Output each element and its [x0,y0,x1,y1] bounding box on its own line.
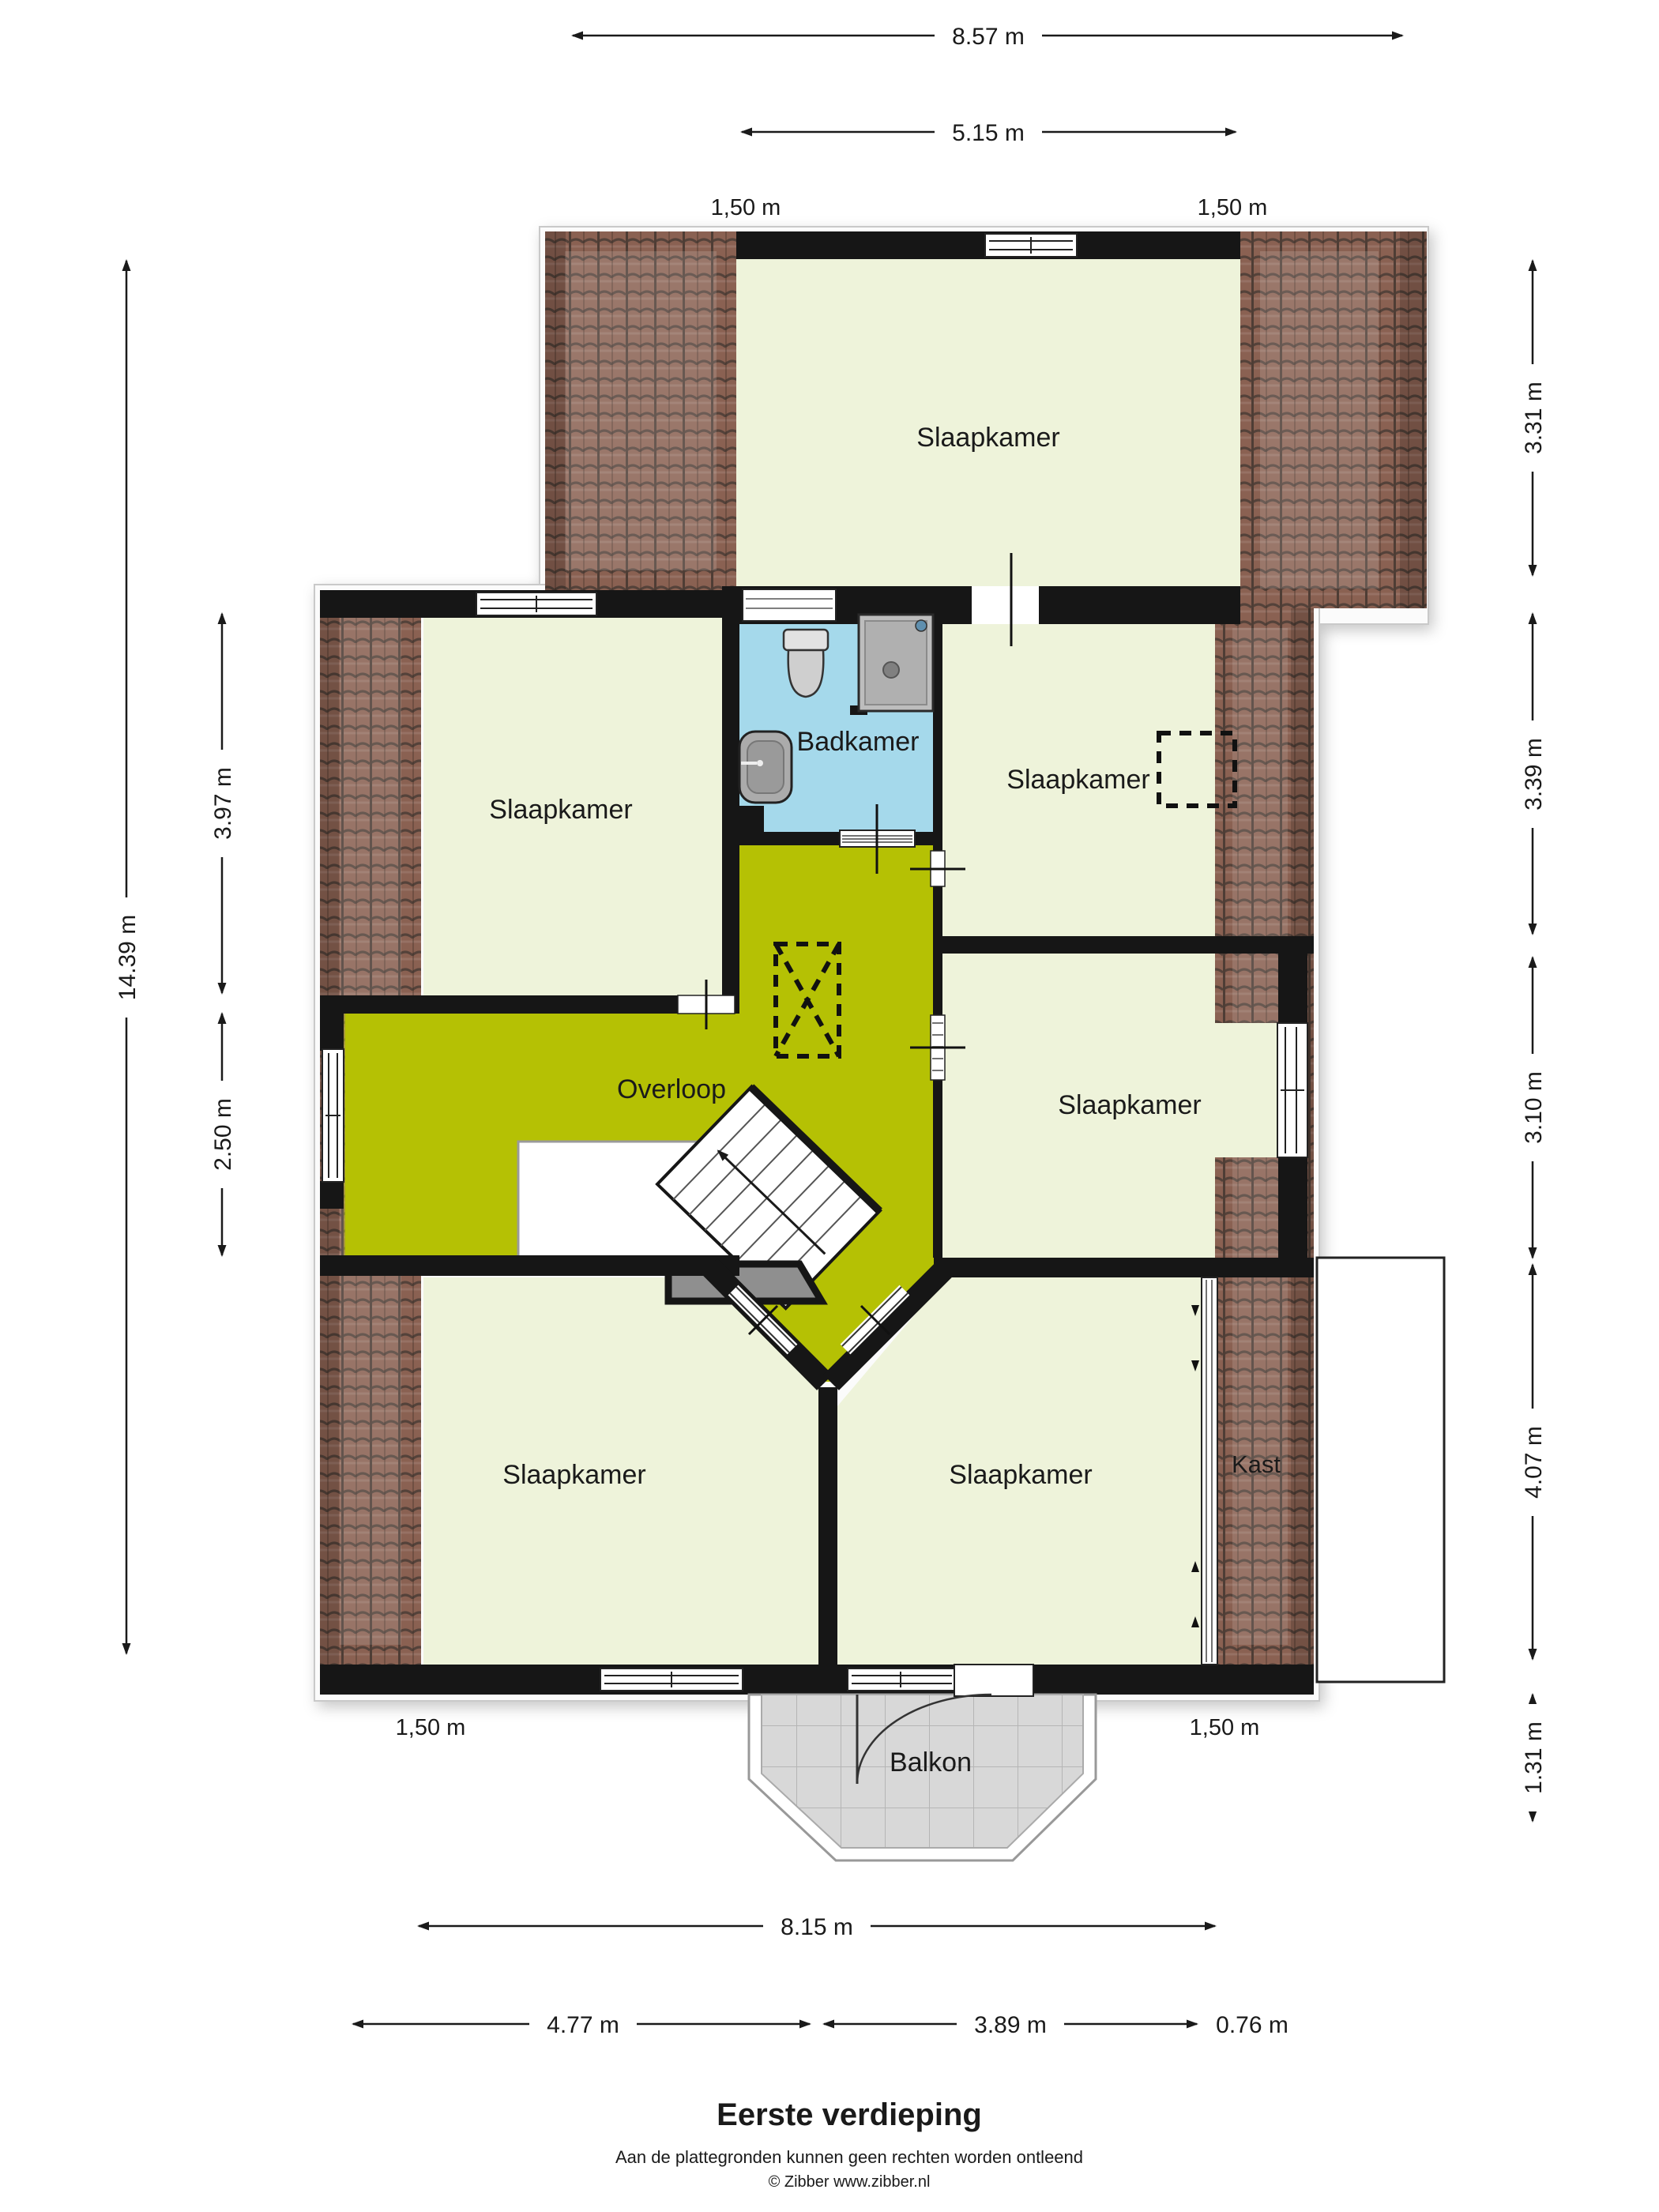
room-floors [344,259,1280,1665]
label-closet: Kast [1232,1450,1281,1478]
svg-text:4.77 m: 4.77 m [547,2012,619,2038]
svg-text:5.15 m: 5.15 m [952,120,1025,146]
svg-text:1.31 m: 1.31 m [1521,1721,1547,1794]
label-bedroom-bottom-middle: Slaapkamer [949,1460,1092,1490]
label-landing: Overloop [617,1074,726,1104]
label-bedroom-right-upper: Slaapkamer [1006,765,1149,795]
window-landing-west [322,1049,344,1182]
dim-right-5: 1.31 m [1518,1695,1548,1821]
window-top-bedroom [985,234,1077,257]
svg-text:8.15 m: 8.15 m [781,1914,853,1940]
dim-top-inner: 5.15 m [742,117,1236,147]
floor-plan: Slaapkamer Slaapkamer Badkamer Slaapkame… [0,0,1659,2212]
svg-text:3.10 m: 3.10 m [1521,1071,1547,1144]
window-bedroom-right-middle-east [1277,1023,1307,1157]
svg-text:8.57 m: 8.57 m [952,24,1025,50]
window-bedroom-bottom-left [600,1668,743,1691]
label-bedroom-left: Slaapkamer [489,795,632,825]
dim-right-2: 3.39 m [1518,614,1548,934]
sink-icon [739,732,792,803]
shower-icon [859,615,933,711]
dim-eave-bottom-left: 1,50 m [396,1715,466,1740]
dim-eave-bottom-right: 1,50 m [1190,1715,1260,1740]
dim-left-total: 14.39 m [111,261,141,1653]
dim-eave-top-left: 1,50 m [711,195,781,220]
dim-top-total: 8.57 m [573,21,1402,51]
window-bedroom-left-north [476,592,596,615]
dim-left-upper: 3.97 m [207,614,237,993]
svg-text:3.31 m: 3.31 m [1521,382,1547,454]
dim-bottom-right: 0.76 m [1216,2012,1288,2038]
label-bedroom-bottom-left: Slaapkamer [502,1460,645,1490]
roof-shadow [545,231,566,590]
label-bedroom-right-middle: Slaapkamer [1058,1090,1201,1120]
window-balcony [848,1668,956,1691]
dim-bottom-middle: 3.89 m [824,2009,1197,2039]
disclaimer-text: Aan de plattegronden kunnen geen rechten… [615,2147,1083,2167]
lower-roof-outline [1317,1258,1444,1682]
roof-highlight [565,251,717,570]
footer: Eerste verdieping Aan de plattegronden k… [615,2097,1083,2191]
dim-bottom-total: 8.15 m [419,1911,1215,1941]
dim-right-1: 3.31 m [1518,261,1548,575]
roof-highlight [1260,251,1379,589]
floor-title: Eerste verdieping [717,2097,982,2132]
door-bathroom-north [743,589,836,621]
landing-under-roof-tint [344,1014,421,1258]
roof-shadow [1400,231,1427,608]
svg-text:2.50 m: 2.50 m [210,1098,236,1171]
dormer-right-middle [1215,1023,1280,1157]
dim-right-4: 4.07 m [1518,1265,1548,1659]
dim-eave-top-right: 1,50 m [1198,195,1268,220]
dim-right-3: 3.10 m [1518,957,1548,1258]
label-bathroom: Badkamer [797,727,920,757]
svg-text:3.39 m: 3.39 m [1521,738,1547,811]
svg-text:4.07 m: 4.07 m [1521,1426,1547,1499]
dim-left-lower: 2.50 m [207,1014,237,1255]
label-balcony: Balkon [890,1747,972,1777]
dim-bottom-left: 4.77 m [353,2009,810,2039]
label-bedroom-top: Slaapkamer [916,423,1059,453]
svg-text:14.39 m: 14.39 m [115,915,141,1000]
copyright-text: © Zibber www.zibber.nl [769,2173,931,2191]
svg-text:3.97 m: 3.97 m [210,767,236,840]
svg-text:3.89 m: 3.89 m [974,2012,1047,2038]
closet-sliding-door [1202,1277,1217,1665]
